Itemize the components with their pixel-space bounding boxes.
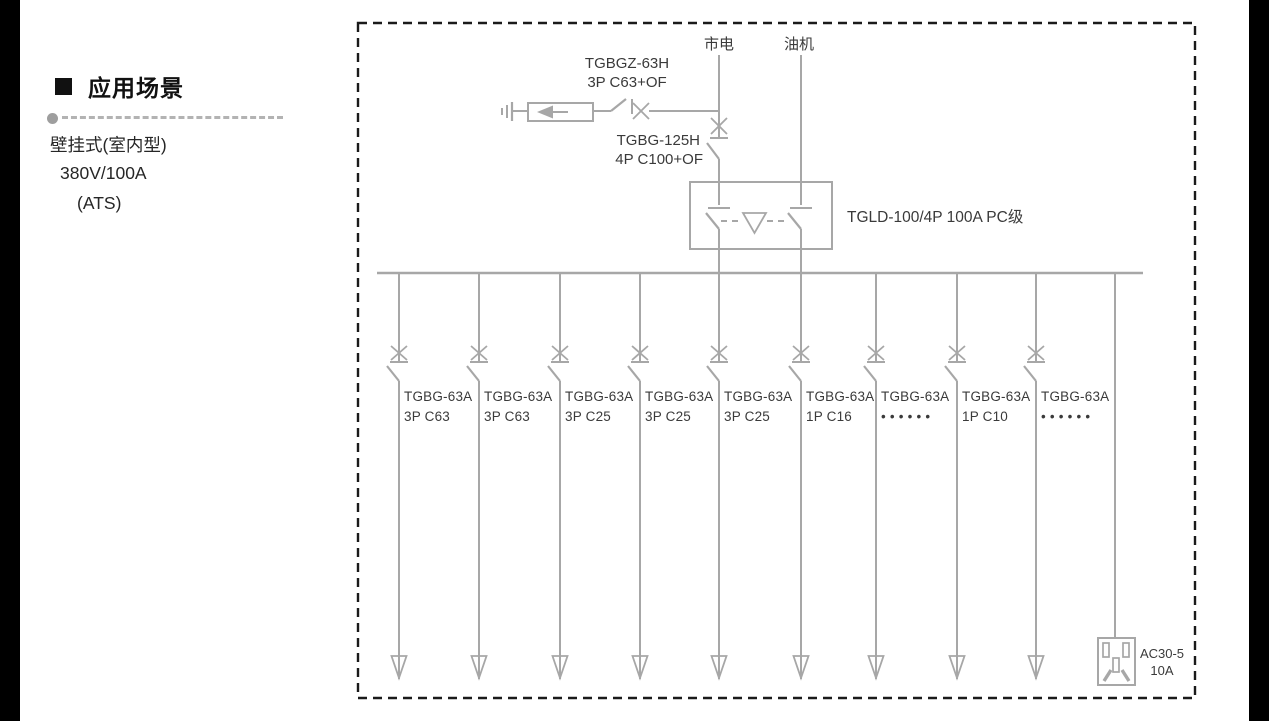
spd-model-label: TGBGZ-63H (557, 55, 697, 72)
branch-label-4: TGBG-63A 3P C25 (645, 388, 713, 426)
branch-spec: 3P C25 (565, 408, 633, 426)
ats-label: TGLD-100/4P 100A PC级 (847, 205, 1023, 227)
branch-model: TGBG-63A (724, 388, 792, 406)
branch-label-1: TGBG-63A 3P C63 (404, 388, 472, 426)
socket-icon (1098, 638, 1135, 685)
outgoing-branches (387, 274, 1045, 679)
branch-symbol-2 (467, 274, 488, 679)
branch-spec: • • • • • • (881, 408, 949, 426)
branch-label-2: TGBG-63A 3P C63 (484, 388, 552, 426)
branch-model: TGBG-63A (806, 388, 874, 406)
branch-model: TGBG-63A (404, 388, 472, 406)
branch-model: TGBG-63A (484, 388, 552, 406)
ats-switch (690, 182, 832, 273)
spd-branch (502, 99, 719, 121)
branch-symbol-4 (628, 274, 649, 679)
branch-model: TGBG-63A (881, 388, 949, 406)
ats-interlock-icon (721, 213, 788, 233)
diagram-dashed-border (358, 23, 1195, 698)
branch-label-8: TGBG-63A 1P C10 (962, 388, 1030, 426)
branch-spec: 1P C10 (962, 408, 1030, 426)
branch-spec: 3P C63 (484, 408, 552, 426)
socket-rating-label: 10A (1137, 663, 1187, 679)
circuit-diagram (0, 0, 1269, 721)
branch-symbol-1 (387, 274, 408, 679)
branch-label-9: TGBG-63A • • • • • • (1041, 388, 1109, 426)
branch-model: TGBG-63A (565, 388, 633, 406)
branch-spec: 1P C16 (806, 408, 874, 426)
spd-spec-label: 3P C63+OF (557, 74, 697, 91)
branch-model: TGBG-63A (1041, 388, 1109, 406)
generator-source-label: 油机 (759, 33, 839, 54)
mains-incomer-line (707, 55, 728, 182)
branch-symbol-5 (707, 274, 728, 679)
branch-symbol-3 (548, 274, 569, 679)
branch-model: TGBG-63A (645, 388, 713, 406)
spd-breaker-icon (611, 99, 649, 119)
socket-branch (1098, 273, 1135, 685)
branch-model: TGBG-63A (962, 388, 1030, 406)
branch-spec: 3P C25 (724, 408, 792, 426)
ground-icon (502, 102, 512, 121)
branch-label-5: TGBG-63A 3P C25 (724, 388, 792, 426)
branch-symbol-7 (864, 274, 885, 679)
branch-symbol-6 (789, 274, 810, 679)
branch-symbol-9 (1024, 274, 1045, 679)
branch-symbol-8 (945, 274, 966, 679)
branch-label-6: TGBG-63A 1P C16 (806, 388, 874, 426)
branch-spec: • • • • • • (1041, 408, 1109, 426)
branch-spec: 3P C25 (645, 408, 713, 426)
mains-source-label: 市电 (679, 33, 759, 54)
incomer-spec-label: 4P C100+OF (560, 151, 703, 168)
branch-label-3: TGBG-63A 3P C25 (565, 388, 633, 426)
spd-device-icon (528, 103, 593, 121)
branch-label-7: TGBG-63A • • • • • • (881, 388, 949, 426)
branch-spec: 3P C63 (404, 408, 472, 426)
incomer-model-label: TGBG-125H (560, 132, 700, 149)
socket-model-label: AC30-5 (1137, 646, 1187, 662)
